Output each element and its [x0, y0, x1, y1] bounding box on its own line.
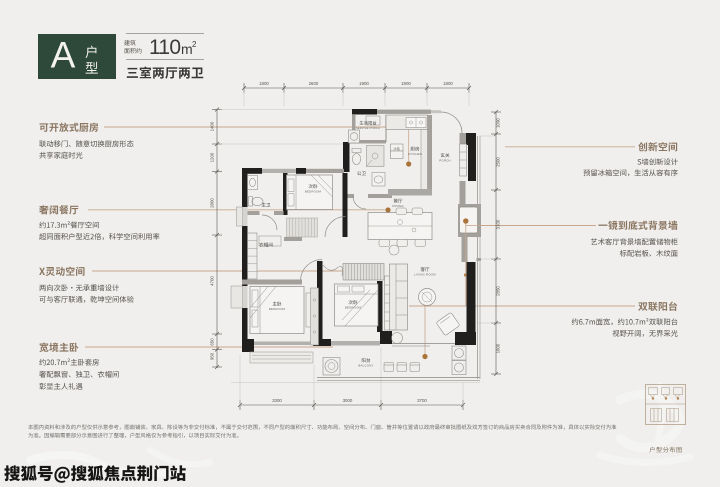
svg-text:1900: 1900 — [401, 81, 411, 86]
svg-text:2600: 2600 — [309, 81, 319, 86]
svg-text:KITCHEN: KITCHEN — [408, 152, 422, 156]
svg-text:1800: 1800 — [259, 81, 269, 86]
svg-text:650: 650 — [210, 338, 215, 346]
svg-text:1800: 1800 — [443, 81, 453, 86]
svg-text:1200: 1200 — [210, 152, 215, 162]
svg-text:2: 2 — [192, 40, 197, 49]
svg-text:1090: 1090 — [496, 118, 501, 128]
svg-text:3700: 3700 — [417, 398, 427, 403]
svg-text:1400: 1400 — [210, 121, 215, 131]
svg-text:A: A — [51, 35, 76, 76]
svg-text:2800: 2800 — [210, 198, 215, 208]
svg-text:BEDROOM: BEDROOM — [345, 306, 362, 310]
svg-text:950: 950 — [210, 352, 215, 360]
svg-text:BALCONY: BALCONY — [358, 364, 373, 368]
svg-text:2850: 2850 — [496, 286, 501, 296]
svg-text:LIVING ROOM: LIVING ROOM — [414, 273, 436, 277]
svg-text:BEDROOM: BEDROOM — [269, 307, 286, 311]
svg-text:110: 110 — [149, 36, 180, 59]
svg-text:4700: 4700 — [210, 276, 215, 286]
svg-text:3100: 3100 — [496, 219, 501, 229]
svg-text:3300: 3300 — [272, 398, 282, 403]
svg-text:1900: 1900 — [359, 81, 369, 86]
svg-text:3000: 3000 — [343, 398, 353, 403]
svg-text:2500: 2500 — [496, 157, 501, 167]
svg-text:SERVICE PORCH: SERVICE PORCH — [356, 126, 380, 130]
svg-text:m: m — [181, 41, 193, 57]
svg-text:PORCH: PORCH — [439, 159, 450, 163]
svg-text:1800: 1800 — [496, 343, 501, 353]
svg-text:BEDROOM: BEDROOM — [305, 190, 322, 194]
svg-text:DINING: DINING — [392, 204, 404, 208]
